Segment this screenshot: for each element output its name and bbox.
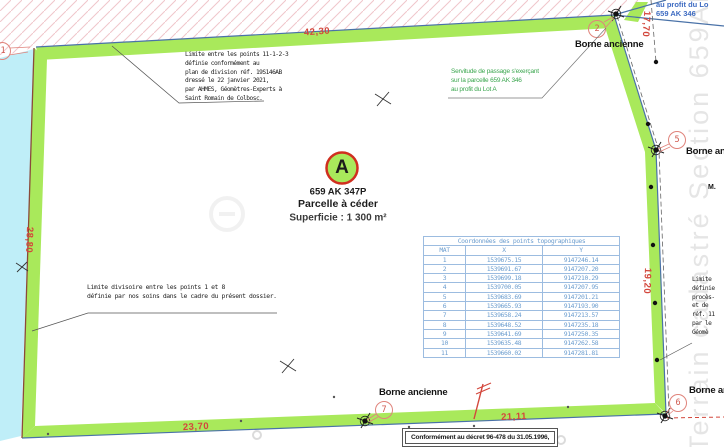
cell-y: 9147213.57 <box>543 311 620 320</box>
note-line: 659 AK 346 <box>656 9 709 18</box>
dimension-bottom-left: 23,70 <box>183 421 210 433</box>
cell-y: 9147201.21 <box>543 292 620 301</box>
note-line: Servitude de passage s'exerçant <box>451 67 539 76</box>
cell-x: 1539641.69 <box>466 329 543 338</box>
dimension-bottom-right: 21,11 <box>501 411 527 423</box>
note-line: Saint Romain de Colbosc. <box>185 95 288 104</box>
note-line: au profit du Lot A <box>451 85 539 94</box>
borne-label-bottom-right: Borne ancienne <box>689 385 724 396</box>
cell-mat: 2 <box>424 264 466 273</box>
note-limit-division: Limite divisoire entre les points 1 et 8… <box>87 283 277 301</box>
table-row: 31539699.189147210.29 <box>424 274 620 283</box>
parcel-designation: Parcelle à céder <box>298 198 378 210</box>
cell-mat: 11 <box>424 348 466 357</box>
borne-label-right: Borne ancienne <box>686 146 724 157</box>
note-line: définie conformément au <box>185 60 288 69</box>
table-row: 61539665.939147193.90 <box>424 302 620 311</box>
cell-mat: 6 <box>424 302 466 311</box>
borne-label-top: Borne ancienne <box>575 39 643 50</box>
col-header: Y <box>543 246 620 255</box>
point-number-1: 1 <box>0 46 5 56</box>
cell-mat: 7 <box>424 311 466 320</box>
point-number-2: 2 <box>594 24 599 34</box>
cell-y: 9147235.18 <box>543 320 620 329</box>
note-right-clipped: Limite définie procès- et de réf. 11 par… <box>692 276 715 338</box>
table-row: 71539658.249147213.57 <box>424 311 620 320</box>
note-top-right-blue: au profit du Lo 659 AK 346 <box>656 0 709 18</box>
cell-x: 1539635.48 <box>466 339 543 348</box>
dimension-right: 19,20 <box>641 268 653 295</box>
coordinates-table: Coordonnées des points topographiques MA… <box>423 236 620 358</box>
parcel-ref: 659 AK 347P <box>310 187 367 198</box>
decree-text: Conformément au décret 96-478 du 31.05.1… <box>411 434 549 441</box>
table-title-row: Coordonnées des points topographiques <box>424 237 620 246</box>
decree-box: Conformément au décret 96-478 du 31.05.1… <box>402 428 558 447</box>
point-number-7: 7 <box>381 405 386 415</box>
cell-x: 1539665.93 <box>466 302 543 311</box>
note-line: au profit du Lo <box>656 0 709 9</box>
note-line: définie <box>692 285 715 294</box>
cross-marks <box>16 92 391 373</box>
col-header: X <box>466 246 543 255</box>
cell-mat: 1 <box>424 255 466 264</box>
borne-label-bottom: Borne ancienne <box>379 387 447 398</box>
cell-y: 9147210.29 <box>543 274 620 283</box>
note-line: Limite <box>692 276 715 285</box>
cadastral-plan: Terrain cadastré Section 659AK n 42,30 1… <box>0 0 724 447</box>
cell-y: 9147262.58 <box>543 339 620 348</box>
cell-mat: 3 <box>424 274 466 283</box>
table-row: 81539648.529147235.18 <box>424 320 620 329</box>
cell-mat: 10 <box>424 339 466 348</box>
note-line: et de <box>692 302 715 311</box>
cell-mat: 5 <box>424 292 466 301</box>
parcel-point-label: A <box>335 157 349 179</box>
table-row: 111539660.029147281.81 <box>424 348 620 357</box>
note-line: Limite divisoire entre les points 1 et 8 <box>87 283 277 292</box>
note-line: procès- <box>692 294 715 303</box>
col-header: MAT <box>424 246 466 255</box>
table-row: 51539683.699147201.21 <box>424 292 620 301</box>
table-row: 41539700.059147207.95 <box>424 283 620 292</box>
table-row: 91539641.699147250.35 <box>424 329 620 338</box>
cell-x: 1539683.69 <box>466 292 543 301</box>
dimension-left: 28,80 <box>23 227 35 254</box>
cell-x: 1539658.24 <box>466 311 543 320</box>
cell-mat: 4 <box>424 283 466 292</box>
decree-box-inner: Conformément au décret 96-478 du 31.05.1… <box>405 431 555 444</box>
note-line: par AHMES, Géomètres-Experts à <box>185 86 288 95</box>
table-row: 21539691.679147207.20 <box>424 264 620 273</box>
note-servitude: Servitude de passage s'exerçant sur la p… <box>451 67 539 94</box>
parcel-area: Superficie : 1 300 m² <box>289 213 386 224</box>
note-line: dressé le 22 janvier 2021, <box>185 77 288 86</box>
cell-x: 1539660.02 <box>466 348 543 357</box>
table-row: 101539635.489147262.58 <box>424 339 620 348</box>
cell-mat: 9 <box>424 329 466 338</box>
dimension-top-right: 17,70 <box>640 11 652 38</box>
table-title: Coordonnées des points topographiques <box>424 237 620 246</box>
note-line: définie par nos soins dans le cadre du p… <box>87 292 277 301</box>
point-number-5: 5 <box>674 135 679 145</box>
owner-fragment: M. <box>708 184 716 191</box>
cell-x: 1539691.67 <box>466 264 543 273</box>
note-line: réf. 11 <box>692 311 715 320</box>
dimension-top: 42,30 <box>304 26 331 39</box>
watermark-logo <box>211 198 243 230</box>
table-row: 11539675.159147246.14 <box>424 255 620 264</box>
cell-y: 9147246.14 <box>543 255 620 264</box>
cell-x: 1539699.18 <box>466 274 543 283</box>
cell-y: 9147193.90 <box>543 302 620 311</box>
point-number-6: 6 <box>675 398 680 408</box>
cell-y: 9147207.20 <box>543 264 620 273</box>
note-line: Limite entre les points 11-1-2-3 <box>185 51 288 60</box>
note-limit-north: Limite entre les points 11-1-2-3 définie… <box>185 51 288 104</box>
cell-x: 1539648.52 <box>466 320 543 329</box>
cell-y: 9147281.81 <box>543 348 620 357</box>
note-line: sur la parcelle 659 AK 346 <box>451 76 539 85</box>
cell-x: 1539700.05 <box>466 283 543 292</box>
vertical-watermark: Terrain cadastré Section 659AK n <box>684 0 715 447</box>
table-header-row: MAT X Y <box>424 246 620 255</box>
cell-y: 9147250.35 <box>543 329 620 338</box>
note-line: Géomè <box>692 329 715 338</box>
cell-y: 9147207.95 <box>543 283 620 292</box>
cell-mat: 8 <box>424 320 466 329</box>
note-line: par le <box>692 320 715 329</box>
watermark-glyph <box>252 430 262 440</box>
plan-geometry <box>0 0 724 447</box>
cell-x: 1539675.15 <box>466 255 543 264</box>
